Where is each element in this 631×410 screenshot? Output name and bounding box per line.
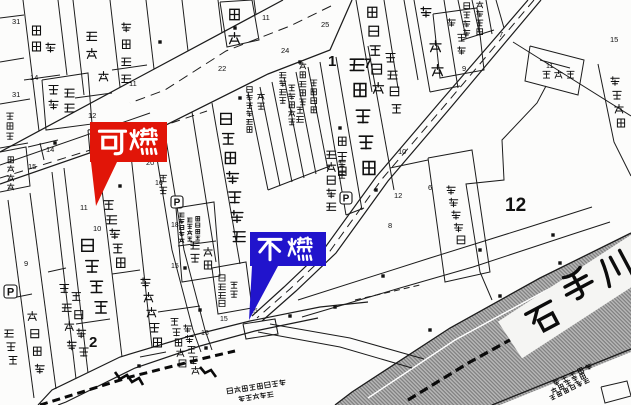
- svg-text:22: 22: [218, 64, 226, 73]
- svg-text:11: 11: [129, 79, 137, 88]
- svg-text:11: 11: [546, 63, 553, 70]
- svg-text:15: 15: [220, 316, 228, 323]
- svg-text:2: 2: [89, 334, 97, 351]
- svg-text:16: 16: [201, 330, 209, 337]
- svg-text:15: 15: [610, 35, 618, 44]
- svg-text:11: 11: [262, 13, 270, 22]
- svg-text:10: 10: [93, 224, 101, 233]
- svg-text:1: 1: [328, 53, 336, 70]
- svg-text:14: 14: [46, 145, 54, 154]
- svg-text:P: P: [174, 198, 181, 209]
- svg-text:11: 11: [80, 203, 88, 212]
- svg-text:12: 12: [505, 195, 526, 216]
- svg-text:10: 10: [398, 147, 406, 156]
- svg-text:31: 31: [12, 90, 20, 99]
- svg-text:14: 14: [30, 73, 38, 82]
- svg-text:8: 8: [388, 221, 392, 230]
- svg-text:15: 15: [28, 162, 36, 171]
- svg-text:P: P: [7, 287, 14, 299]
- svg-text:12: 12: [394, 191, 402, 200]
- svg-text:P: P: [343, 194, 350, 205]
- svg-text:18: 18: [171, 222, 179, 229]
- svg-text:25: 25: [321, 20, 329, 29]
- svg-text:7: 7: [499, 30, 503, 39]
- svg-text:9: 9: [24, 259, 28, 268]
- svg-text:6: 6: [428, 183, 432, 192]
- svg-text:31: 31: [12, 17, 20, 26]
- svg-text:9: 9: [462, 64, 466, 73]
- svg-text:16: 16: [155, 180, 163, 187]
- svg-text:24: 24: [281, 46, 289, 55]
- svg-text:12: 12: [88, 111, 96, 120]
- svg-text:15: 15: [171, 263, 179, 270]
- svg-text:7: 7: [364, 55, 372, 71]
